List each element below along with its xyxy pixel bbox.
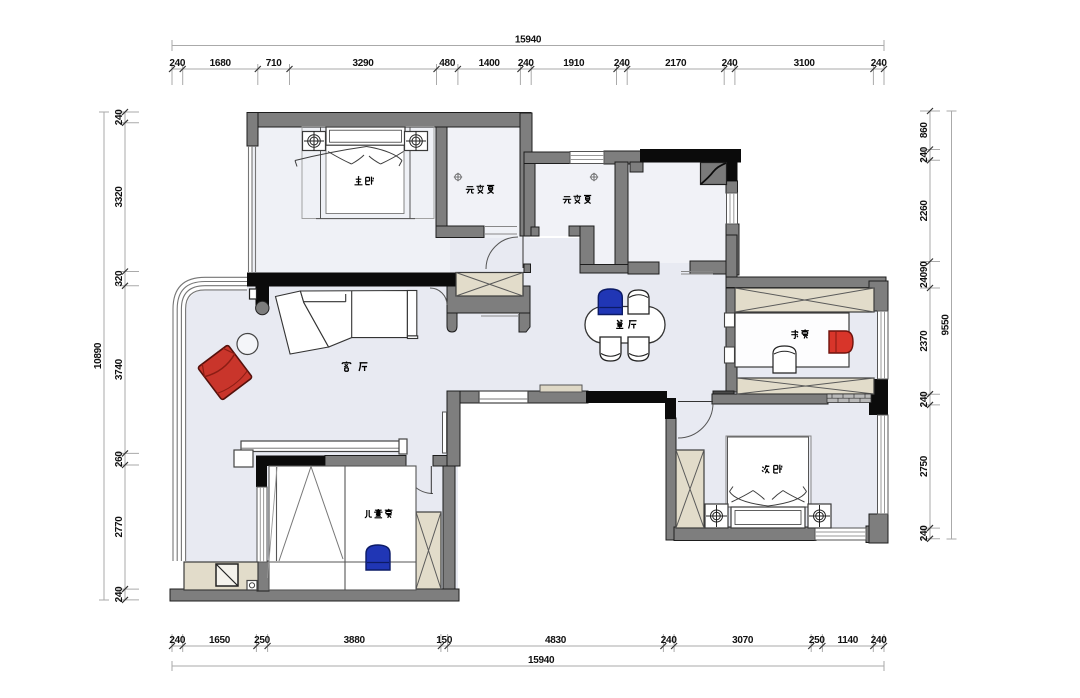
svg-text:2260: 2260 [919,200,930,222]
svg-text:2370: 2370 [919,330,930,352]
svg-text:240: 240 [518,58,535,69]
svg-text:320: 320 [114,270,125,287]
svg-text:240: 240 [169,635,186,646]
svg-text:240: 240 [871,635,888,646]
svg-text:3100: 3100 [794,58,816,69]
svg-text:240: 240 [919,146,930,163]
svg-text:3070: 3070 [732,635,754,646]
svg-text:15940: 15940 [515,35,542,46]
svg-text:1140: 1140 [838,635,859,646]
svg-text:1400: 1400 [479,58,501,69]
svg-text:150: 150 [436,635,453,646]
svg-text:2750: 2750 [919,455,930,477]
svg-text:240: 240 [871,58,888,69]
svg-text:860: 860 [919,122,930,139]
svg-text:240: 240 [114,586,125,603]
svg-text:24090: 24090 [919,261,930,288]
svg-text:1650: 1650 [209,635,231,646]
svg-text:3880: 3880 [344,635,366,646]
svg-text:1680: 1680 [210,58,232,69]
svg-text:240: 240 [614,58,631,69]
svg-text:240: 240 [114,109,125,126]
svg-text:3740: 3740 [114,358,125,380]
svg-text:240: 240 [919,525,930,542]
svg-text:240: 240 [661,635,678,646]
svg-text:240: 240 [722,58,739,69]
svg-text:240: 240 [169,58,186,69]
svg-text:250: 250 [809,635,826,646]
svg-text:15940: 15940 [528,655,555,666]
svg-text:2170: 2170 [665,58,687,69]
svg-text:4830: 4830 [545,635,567,646]
svg-text:10890: 10890 [93,342,104,369]
svg-text:1910: 1910 [563,58,585,69]
svg-text:2770: 2770 [114,516,125,538]
svg-text:480: 480 [439,58,456,69]
svg-text:3320: 3320 [114,186,125,208]
svg-text:9550: 9550 [941,314,952,336]
svg-text:710: 710 [266,58,283,69]
svg-text:3290: 3290 [352,58,374,69]
svg-text:260: 260 [114,451,125,468]
svg-text:240: 240 [919,391,930,408]
svg-text:250: 250 [254,635,271,646]
